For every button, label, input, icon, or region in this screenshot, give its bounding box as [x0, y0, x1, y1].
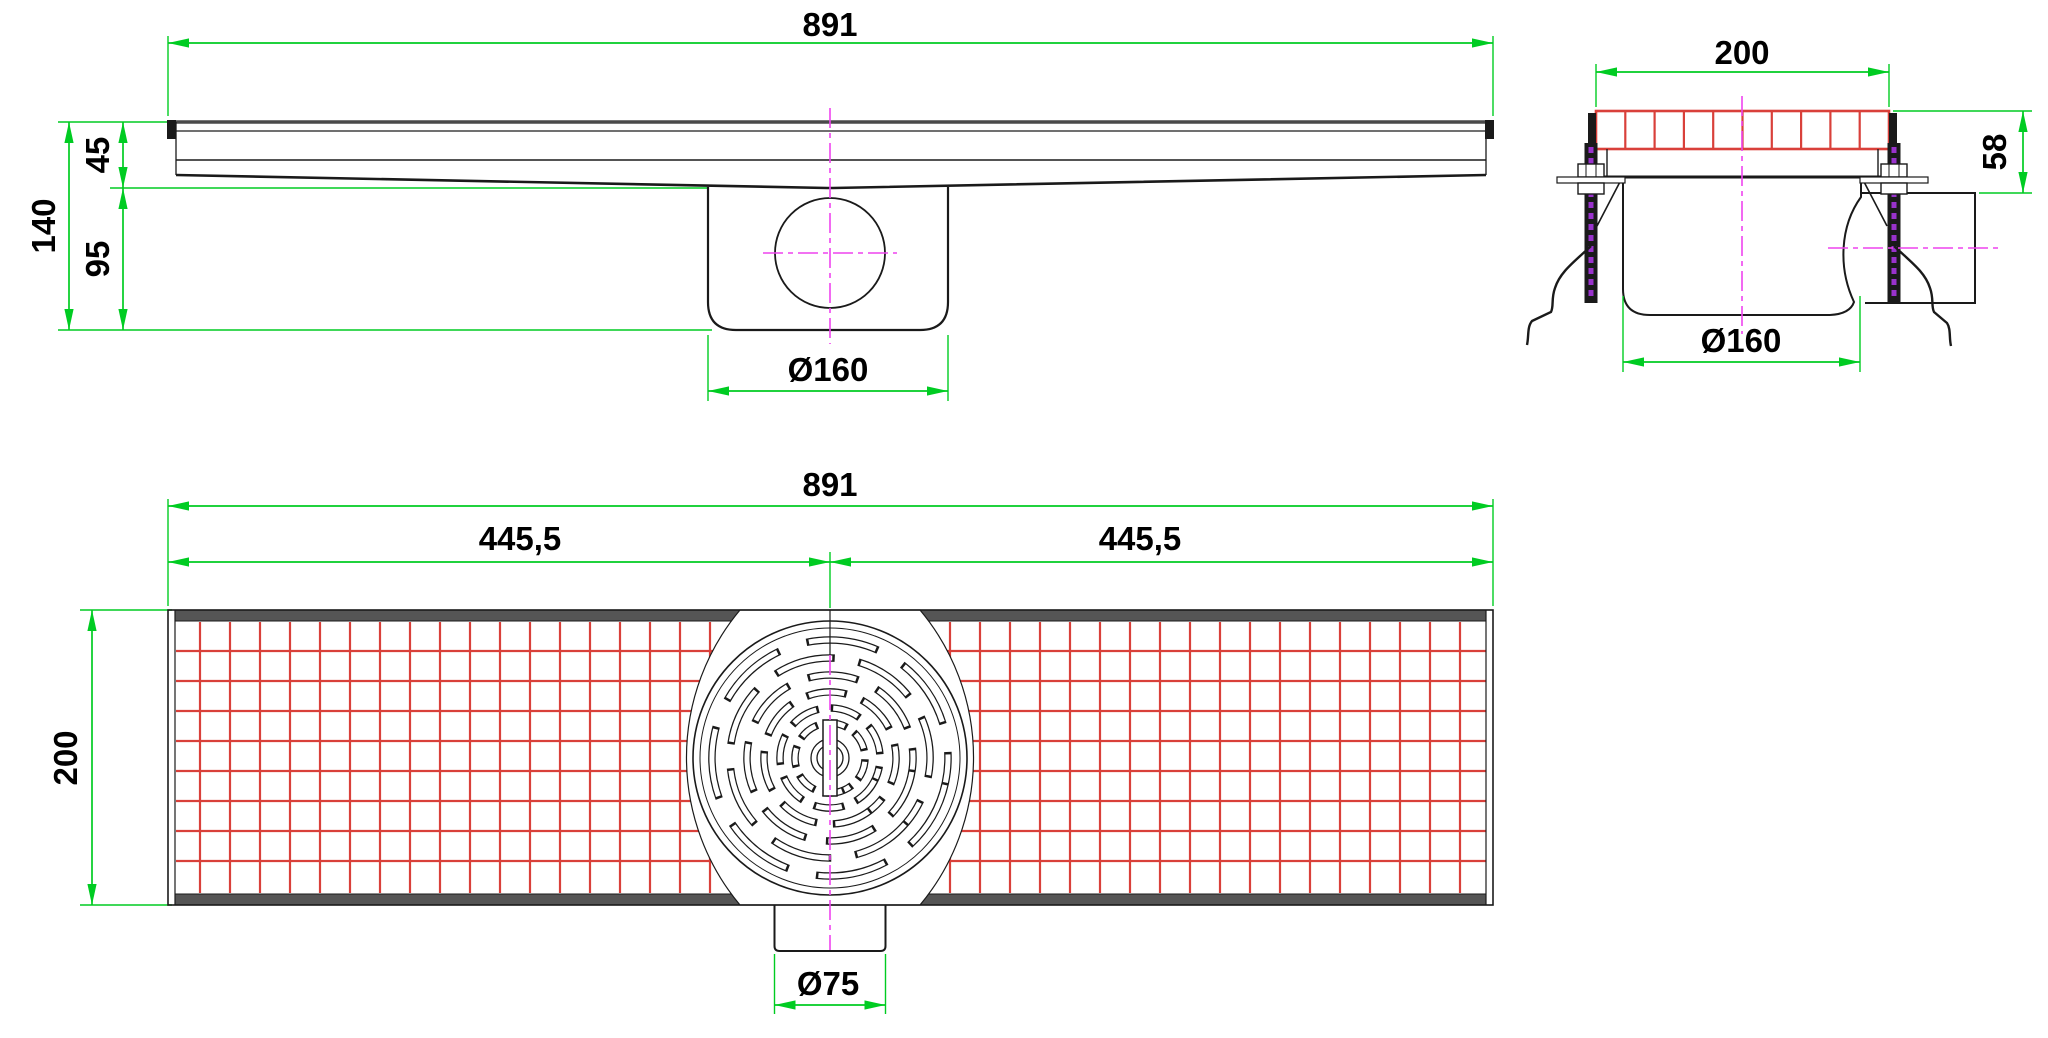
dim-label: 95 [79, 241, 116, 278]
drawing-sheet: 891 140 45 95 [0, 0, 2048, 1033]
nut [1578, 164, 1604, 177]
nut [1881, 183, 1907, 194]
grate-clip-left [1588, 113, 1596, 147]
dim-total-depth: 140 [25, 122, 69, 330]
arrowhead [118, 309, 127, 330]
dim-label: 200 [47, 730, 84, 785]
dim-label: Ø160 [788, 351, 869, 388]
arrowhead [830, 557, 851, 566]
dim-inlet-depth: 45 95 [79, 122, 123, 330]
washer [1860, 177, 1928, 183]
anchor-leg-right [1894, 246, 1951, 346]
arrowhead [64, 122, 73, 143]
arrowhead [168, 38, 189, 47]
end-section-view: 200 [1527, 34, 2032, 372]
arrowhead [168, 501, 189, 510]
end-cap-right [1485, 120, 1494, 139]
dim-plan-half-lengths: 445,5 445,5 [168, 520, 1493, 608]
dim-side-overall-length: 891 [168, 6, 1493, 116]
arrowhead [118, 122, 127, 143]
anchor-leg-left [1527, 246, 1591, 345]
dim-label: 445,5 [479, 520, 562, 557]
arrowhead [1596, 67, 1617, 76]
arrowhead [1472, 501, 1493, 510]
dim-sump-diameter-side: Ø160 [708, 335, 948, 401]
dim-label: 45 [79, 137, 116, 174]
arrowhead [118, 167, 127, 188]
washer [1557, 177, 1625, 183]
dim-label: 445,5 [1099, 520, 1182, 557]
arrowhead [118, 188, 127, 209]
dim-channel-width: 200 [47, 610, 172, 905]
side-elevation-view: 891 140 45 95 [25, 6, 1494, 401]
arrowhead [708, 386, 729, 395]
sump-pot-end [1623, 178, 1975, 315]
dim-label: Ø75 [797, 965, 859, 1002]
anchor-rod-right [1860, 143, 1951, 346]
plan-view: 891 445,5 445,5 200 [47, 466, 1493, 1014]
anchor-rod-left [1527, 143, 1625, 345]
nut [1881, 164, 1907, 177]
arrowhead [1839, 357, 1860, 366]
arrowhead [809, 557, 830, 566]
grate-clip-right [1889, 113, 1897, 147]
arrowhead [168, 557, 189, 566]
arrowhead [1472, 557, 1493, 566]
dim-label: Ø160 [1701, 322, 1782, 359]
arrowhead [1472, 38, 1493, 47]
arrowhead [927, 386, 948, 395]
arrowhead [1623, 357, 1644, 366]
dim-label: 891 [802, 6, 857, 43]
arrowhead [64, 309, 73, 330]
dim-label: 140 [25, 198, 62, 253]
arrowhead [775, 1000, 796, 1009]
arrowhead [1868, 67, 1889, 76]
sump-pot-side [708, 187, 948, 330]
dim-label: 58 [1976, 134, 2013, 171]
dim-label: 200 [1714, 34, 1769, 71]
end-cap-left [167, 120, 176, 139]
floor-drain-technical-drawing: 891 140 45 95 [0, 0, 2048, 1033]
arrowhead [87, 610, 96, 631]
arrowhead [2018, 172, 2027, 193]
arrowhead [87, 884, 96, 905]
arrowhead [865, 1000, 886, 1009]
dim-label: 891 [802, 466, 857, 503]
arrowhead [2018, 111, 2027, 132]
nut [1578, 183, 1604, 194]
